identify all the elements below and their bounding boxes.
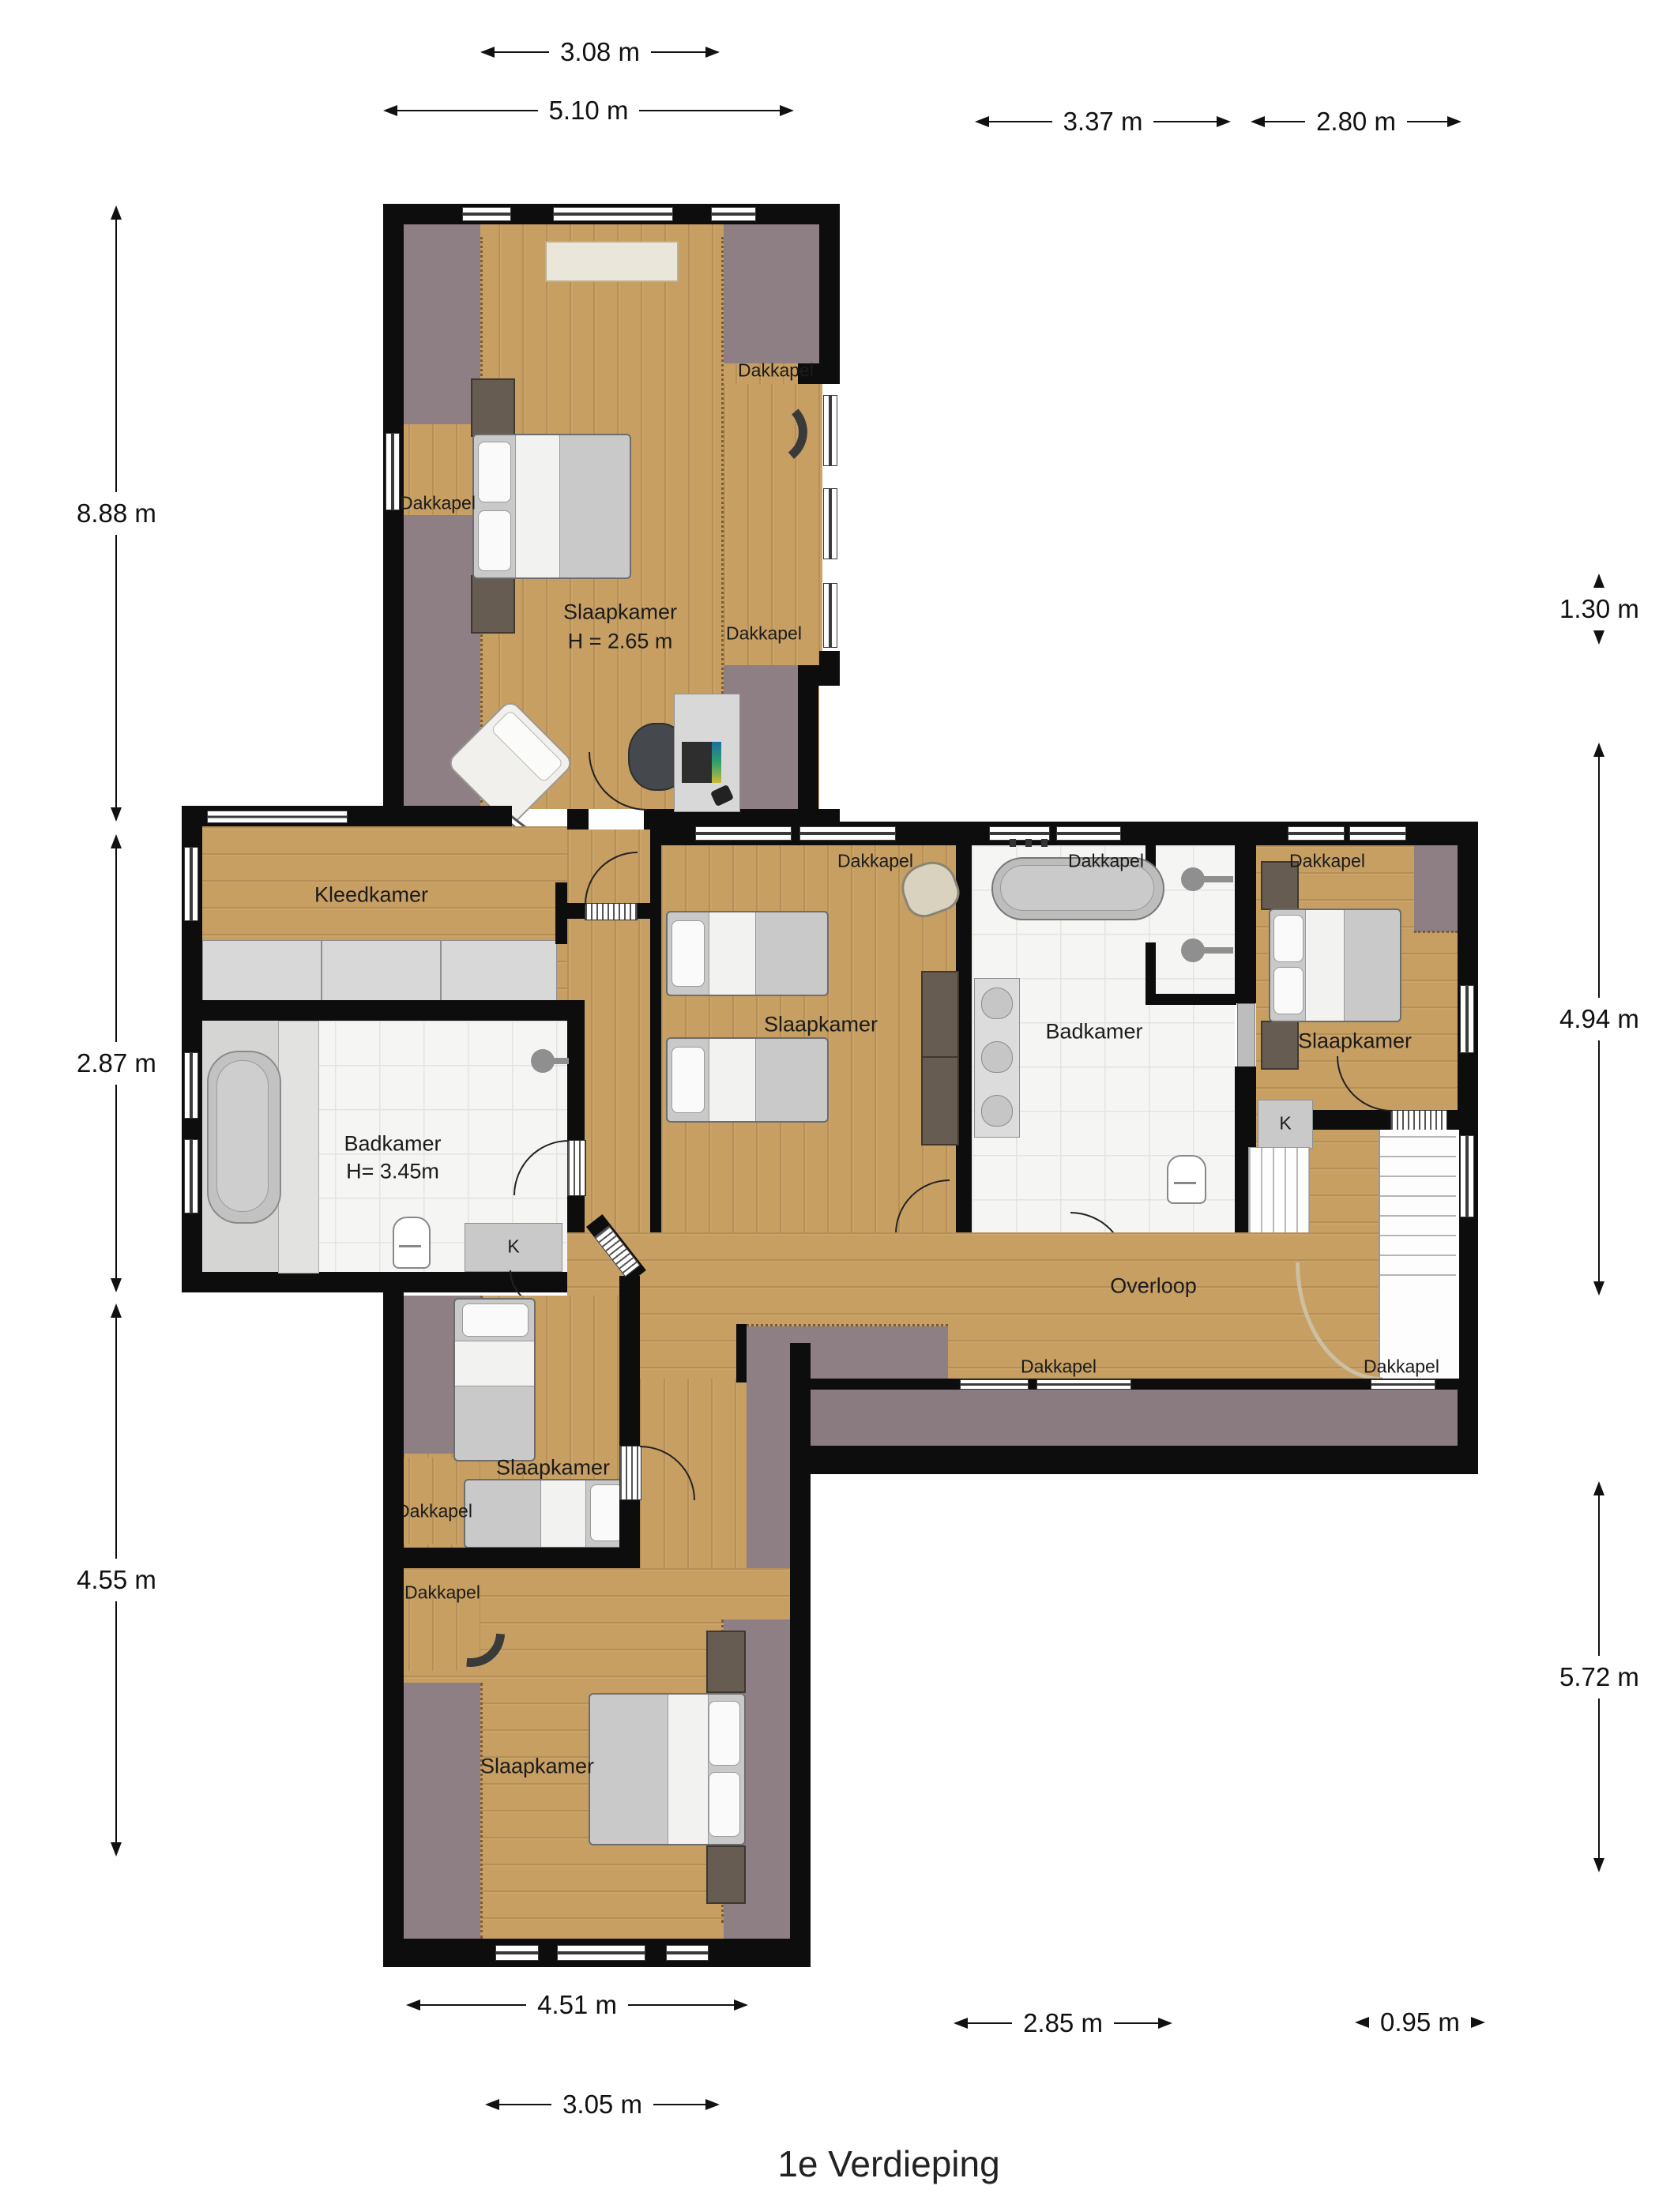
room-label-bedroom-north: Slaapkamer xyxy=(563,600,677,625)
desk xyxy=(674,694,740,812)
laptop-screen xyxy=(712,742,721,783)
wall xyxy=(736,1324,747,1382)
roof-edge-dotted xyxy=(1414,931,1458,933)
roof-edge-dotted xyxy=(480,1683,483,1939)
roof-slope xyxy=(404,1683,480,1939)
bed-sheet xyxy=(1305,910,1345,1021)
window xyxy=(495,1945,539,1961)
dormer-label: Dakkapel xyxy=(404,1582,480,1604)
pillow xyxy=(462,1303,529,1337)
door xyxy=(619,1446,641,1500)
shower-arm xyxy=(1202,876,1233,882)
roof-slope xyxy=(811,1390,1458,1446)
window xyxy=(553,207,673,221)
room-label-bathroom-middle: Badkamer xyxy=(1045,1020,1142,1044)
roof-slope xyxy=(1414,845,1458,932)
roof-slope xyxy=(747,1379,790,1573)
room-label-dressing-room: Kleedkamer xyxy=(314,883,428,908)
window xyxy=(462,207,511,221)
stair-treads xyxy=(1380,1136,1456,1294)
closet-label: K xyxy=(1279,1113,1291,1134)
roof-slope xyxy=(404,224,480,809)
door xyxy=(585,903,638,920)
window xyxy=(823,395,837,466)
pillow xyxy=(671,920,705,987)
dimension-top-2: 5.10 m xyxy=(383,96,794,126)
dormer-label: Dakkapel xyxy=(397,1501,472,1522)
wall xyxy=(1145,994,1236,1005)
shower-arm xyxy=(1202,947,1233,954)
window xyxy=(823,583,837,648)
room-label-bedroom-middle: Slaapkamer xyxy=(764,1013,878,1037)
nightstand xyxy=(471,378,515,437)
wall xyxy=(1145,942,1156,994)
landing-floor xyxy=(567,1232,1379,1379)
single-bed xyxy=(464,1479,627,1548)
bed-sheet xyxy=(540,1480,586,1547)
window xyxy=(1349,826,1406,841)
dimension-left-3: 4.55 m xyxy=(77,1303,156,1856)
window xyxy=(960,1379,1029,1390)
page-title: 1e Verdieping xyxy=(777,2142,999,2185)
window xyxy=(184,1139,198,1213)
window xyxy=(1288,826,1345,841)
bathtub xyxy=(207,1051,281,1224)
small-stairs xyxy=(1248,1147,1310,1234)
window xyxy=(1056,826,1121,841)
single-bed xyxy=(666,911,829,996)
wall xyxy=(811,1446,1478,1474)
pillow xyxy=(478,442,511,502)
wall xyxy=(383,1292,404,1967)
closet-label: K xyxy=(507,1236,519,1258)
bed-sheet xyxy=(455,1341,534,1386)
bed-sheet xyxy=(515,435,560,577)
wall xyxy=(567,809,589,829)
room-height-bedroom-north: H = 2.65 m xyxy=(568,630,673,654)
pillow xyxy=(1273,915,1303,962)
sink-icon xyxy=(981,1095,1013,1127)
dormer-label: Dakkapel xyxy=(837,851,913,872)
window xyxy=(386,433,400,510)
pocket-door xyxy=(1237,1003,1255,1068)
wall xyxy=(798,665,818,829)
nightstand xyxy=(471,575,515,634)
dimension-right-1: 1.30 m xyxy=(1559,574,1639,640)
dormer-label: Dakkapel xyxy=(1364,1356,1439,1378)
wall xyxy=(619,1276,640,1548)
roof-slope xyxy=(747,1326,948,1379)
dresser xyxy=(921,971,959,1145)
dimension-bottom-3: 0.95 m xyxy=(1355,2007,1450,2037)
room-height-bathroom-west: H= 3.45m xyxy=(346,1160,439,1184)
roof-slope xyxy=(724,224,819,363)
dimension-bottom-4: 3.05 m xyxy=(485,2090,720,2120)
window xyxy=(1460,1135,1474,1217)
room-label-bedroom-south: Slaapkamer xyxy=(480,1755,594,1779)
toilet-icon xyxy=(393,1217,431,1269)
wall xyxy=(790,1343,811,1967)
rug xyxy=(545,241,679,282)
double-bed xyxy=(472,434,631,579)
dimension-left-2: 2.87 m xyxy=(77,834,156,1292)
laptop xyxy=(682,742,712,783)
wall xyxy=(182,1000,567,1021)
bed-sheet xyxy=(668,1695,709,1844)
pillow xyxy=(478,510,511,571)
faucet-icon xyxy=(1010,839,1057,847)
wall xyxy=(650,845,661,1253)
dimension-bottom-2: 2.85 m xyxy=(954,2008,1172,2038)
window xyxy=(1036,1379,1131,1390)
pillow xyxy=(590,1484,623,1541)
shelf xyxy=(278,1021,319,1273)
window xyxy=(184,847,198,921)
sink-icon xyxy=(981,1041,1013,1073)
wardrobe xyxy=(706,1845,746,1904)
window xyxy=(823,488,837,559)
nightstand xyxy=(1261,1021,1299,1070)
wall xyxy=(383,1548,640,1568)
dormer-label: Dakkapel xyxy=(1068,851,1144,872)
floor-plan-canvas: Dakkapel Dakkapel Dakkapel Slaapkamer H … xyxy=(0,0,1659,2212)
wardrobe xyxy=(706,1631,746,1693)
double-bed xyxy=(1269,908,1401,1022)
window xyxy=(207,811,348,823)
door xyxy=(1390,1110,1447,1131)
window xyxy=(184,1052,198,1119)
room-label-bedroom-east: Slaapkamer xyxy=(1298,1029,1412,1054)
window xyxy=(666,1945,709,1961)
wardrobe xyxy=(202,940,557,1002)
shower-arm xyxy=(551,1058,569,1064)
wall xyxy=(1235,845,1256,1003)
window xyxy=(1371,1379,1435,1390)
camera xyxy=(710,784,734,807)
wall xyxy=(383,204,404,829)
window xyxy=(711,207,756,221)
dimension-right-3: 5.72 m xyxy=(1559,1481,1639,1872)
wall xyxy=(819,204,840,384)
door xyxy=(567,1140,586,1196)
window xyxy=(695,826,792,841)
headboard-cushion xyxy=(709,1701,740,1766)
dimension-top-1: 3.08 m xyxy=(480,37,720,67)
dormer-label: Dakkapel xyxy=(726,623,802,645)
bed-sheet xyxy=(709,912,756,995)
dormer-label: Dakkapel xyxy=(1021,1356,1097,1378)
pillow xyxy=(1273,967,1303,1014)
toilet-icon xyxy=(1167,1155,1206,1204)
window xyxy=(557,1945,645,1961)
bed-sheet xyxy=(709,1039,756,1121)
double-bed xyxy=(589,1693,746,1845)
window xyxy=(1460,985,1474,1053)
dormer-label: Dakkapel xyxy=(400,493,476,514)
pillow xyxy=(671,1047,705,1113)
dimension-top-3: 3.37 m xyxy=(975,107,1231,137)
single-bed xyxy=(453,1298,536,1461)
room-label-landing: Overloop xyxy=(1110,1274,1197,1299)
dimension-right-2: 4.94 m xyxy=(1559,743,1639,1296)
dimension-top-4: 2.80 m xyxy=(1251,107,1461,137)
window xyxy=(799,826,896,841)
wall xyxy=(811,1379,1458,1390)
dimension-left-1: 8.88 m xyxy=(77,205,156,822)
dormer-label: Dakkapel xyxy=(738,360,814,382)
wall xyxy=(567,1000,585,1272)
headboard-cushion xyxy=(709,1772,740,1837)
room-label-bedroom-southwest: Slaapkamer xyxy=(496,1456,610,1480)
dormer-label: Dakkapel xyxy=(1289,851,1365,872)
single-bed xyxy=(666,1037,829,1123)
room-label-bathroom-west: Badkamer xyxy=(344,1132,441,1157)
dimension-bottom-1: 4.51 m xyxy=(406,1990,748,2020)
sink-icon xyxy=(981,987,1013,1019)
